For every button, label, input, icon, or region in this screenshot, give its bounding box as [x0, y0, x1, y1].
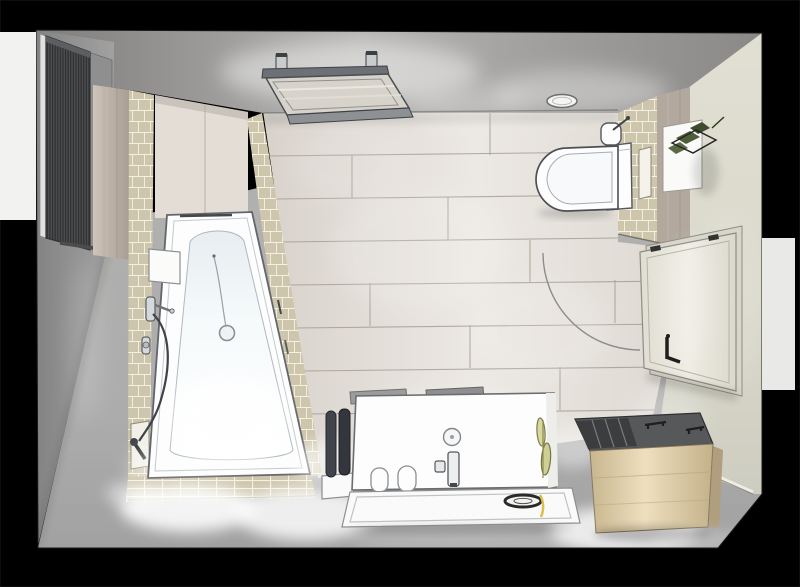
decor-bowl[interactable]	[505, 495, 541, 507]
tumbler[interactable]	[398, 466, 416, 492]
shower-mosaic-wall	[128, 90, 154, 477]
backdrop-panel-right	[762, 238, 795, 390]
storage-bench[interactable]	[575, 413, 723, 542]
tumbler[interactable]	[371, 468, 388, 492]
bench-front[interactable]	[590, 444, 713, 533]
basin-faucet[interactable]	[448, 452, 459, 486]
partition-niche[interactable]	[639, 147, 651, 199]
backdrop-panel-left	[0, 32, 36, 220]
tub-shelf[interactable]	[149, 249, 180, 284]
tub-head-panel	[155, 95, 248, 218]
faucet-handle[interactable]	[435, 461, 445, 472]
overflow-slot	[180, 215, 232, 216]
room-door[interactable]	[640, 226, 742, 401]
bathroom-render-viewport[interactable]	[0, 0, 800, 587]
ceiling-spotlight[interactable]	[547, 95, 577, 108]
wood-trim-strip	[93, 85, 130, 260]
bath-mat[interactable]	[342, 488, 580, 534]
washbasin-vanity[interactable]	[350, 387, 558, 499]
tub-drain	[220, 326, 235, 341]
shower-mixer[interactable]	[146, 297, 155, 321]
